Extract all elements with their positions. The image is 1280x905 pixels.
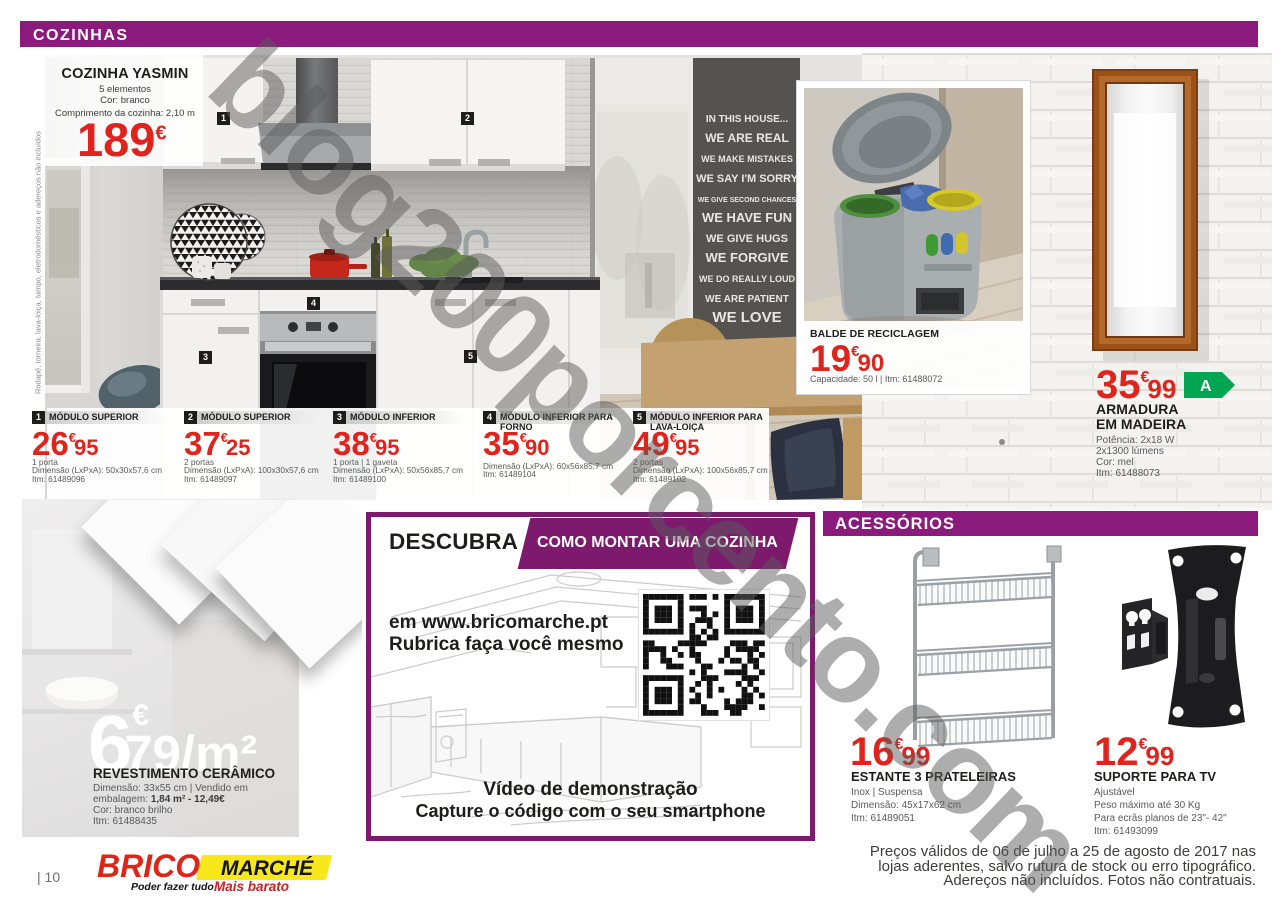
svg-text:IN THIS HOUSE...: IN THIS HOUSE...: [706, 114, 788, 125]
svg-text:WE GIVE HUGS: WE GIVE HUGS: [706, 233, 788, 245]
svg-text:WE MAKE MISTAKES: WE MAKE MISTAKES: [701, 154, 793, 164]
svg-text:WE FORGIVE: WE FORGIVE: [705, 250, 788, 265]
svg-text:WE LOVE: WE LOVE: [712, 309, 781, 326]
svg-text:WE SAY I'M SORRY: WE SAY I'M SORRY: [696, 173, 799, 185]
svg-text:WE HAVE FUN: WE HAVE FUN: [702, 210, 792, 225]
svg-text:WE DO REALLY LOUD: WE DO REALLY LOUD: [699, 274, 796, 284]
svg-text:WE ARE PATIENT: WE ARE PATIENT: [705, 294, 789, 305]
svg-text:A: A: [1200, 378, 1212, 395]
svg-text:WE ARE REAL: WE ARE REAL: [705, 131, 789, 145]
svg-text:WE GIVE SECOND CHANCES: WE GIVE SECOND CHANCES: [698, 197, 797, 204]
